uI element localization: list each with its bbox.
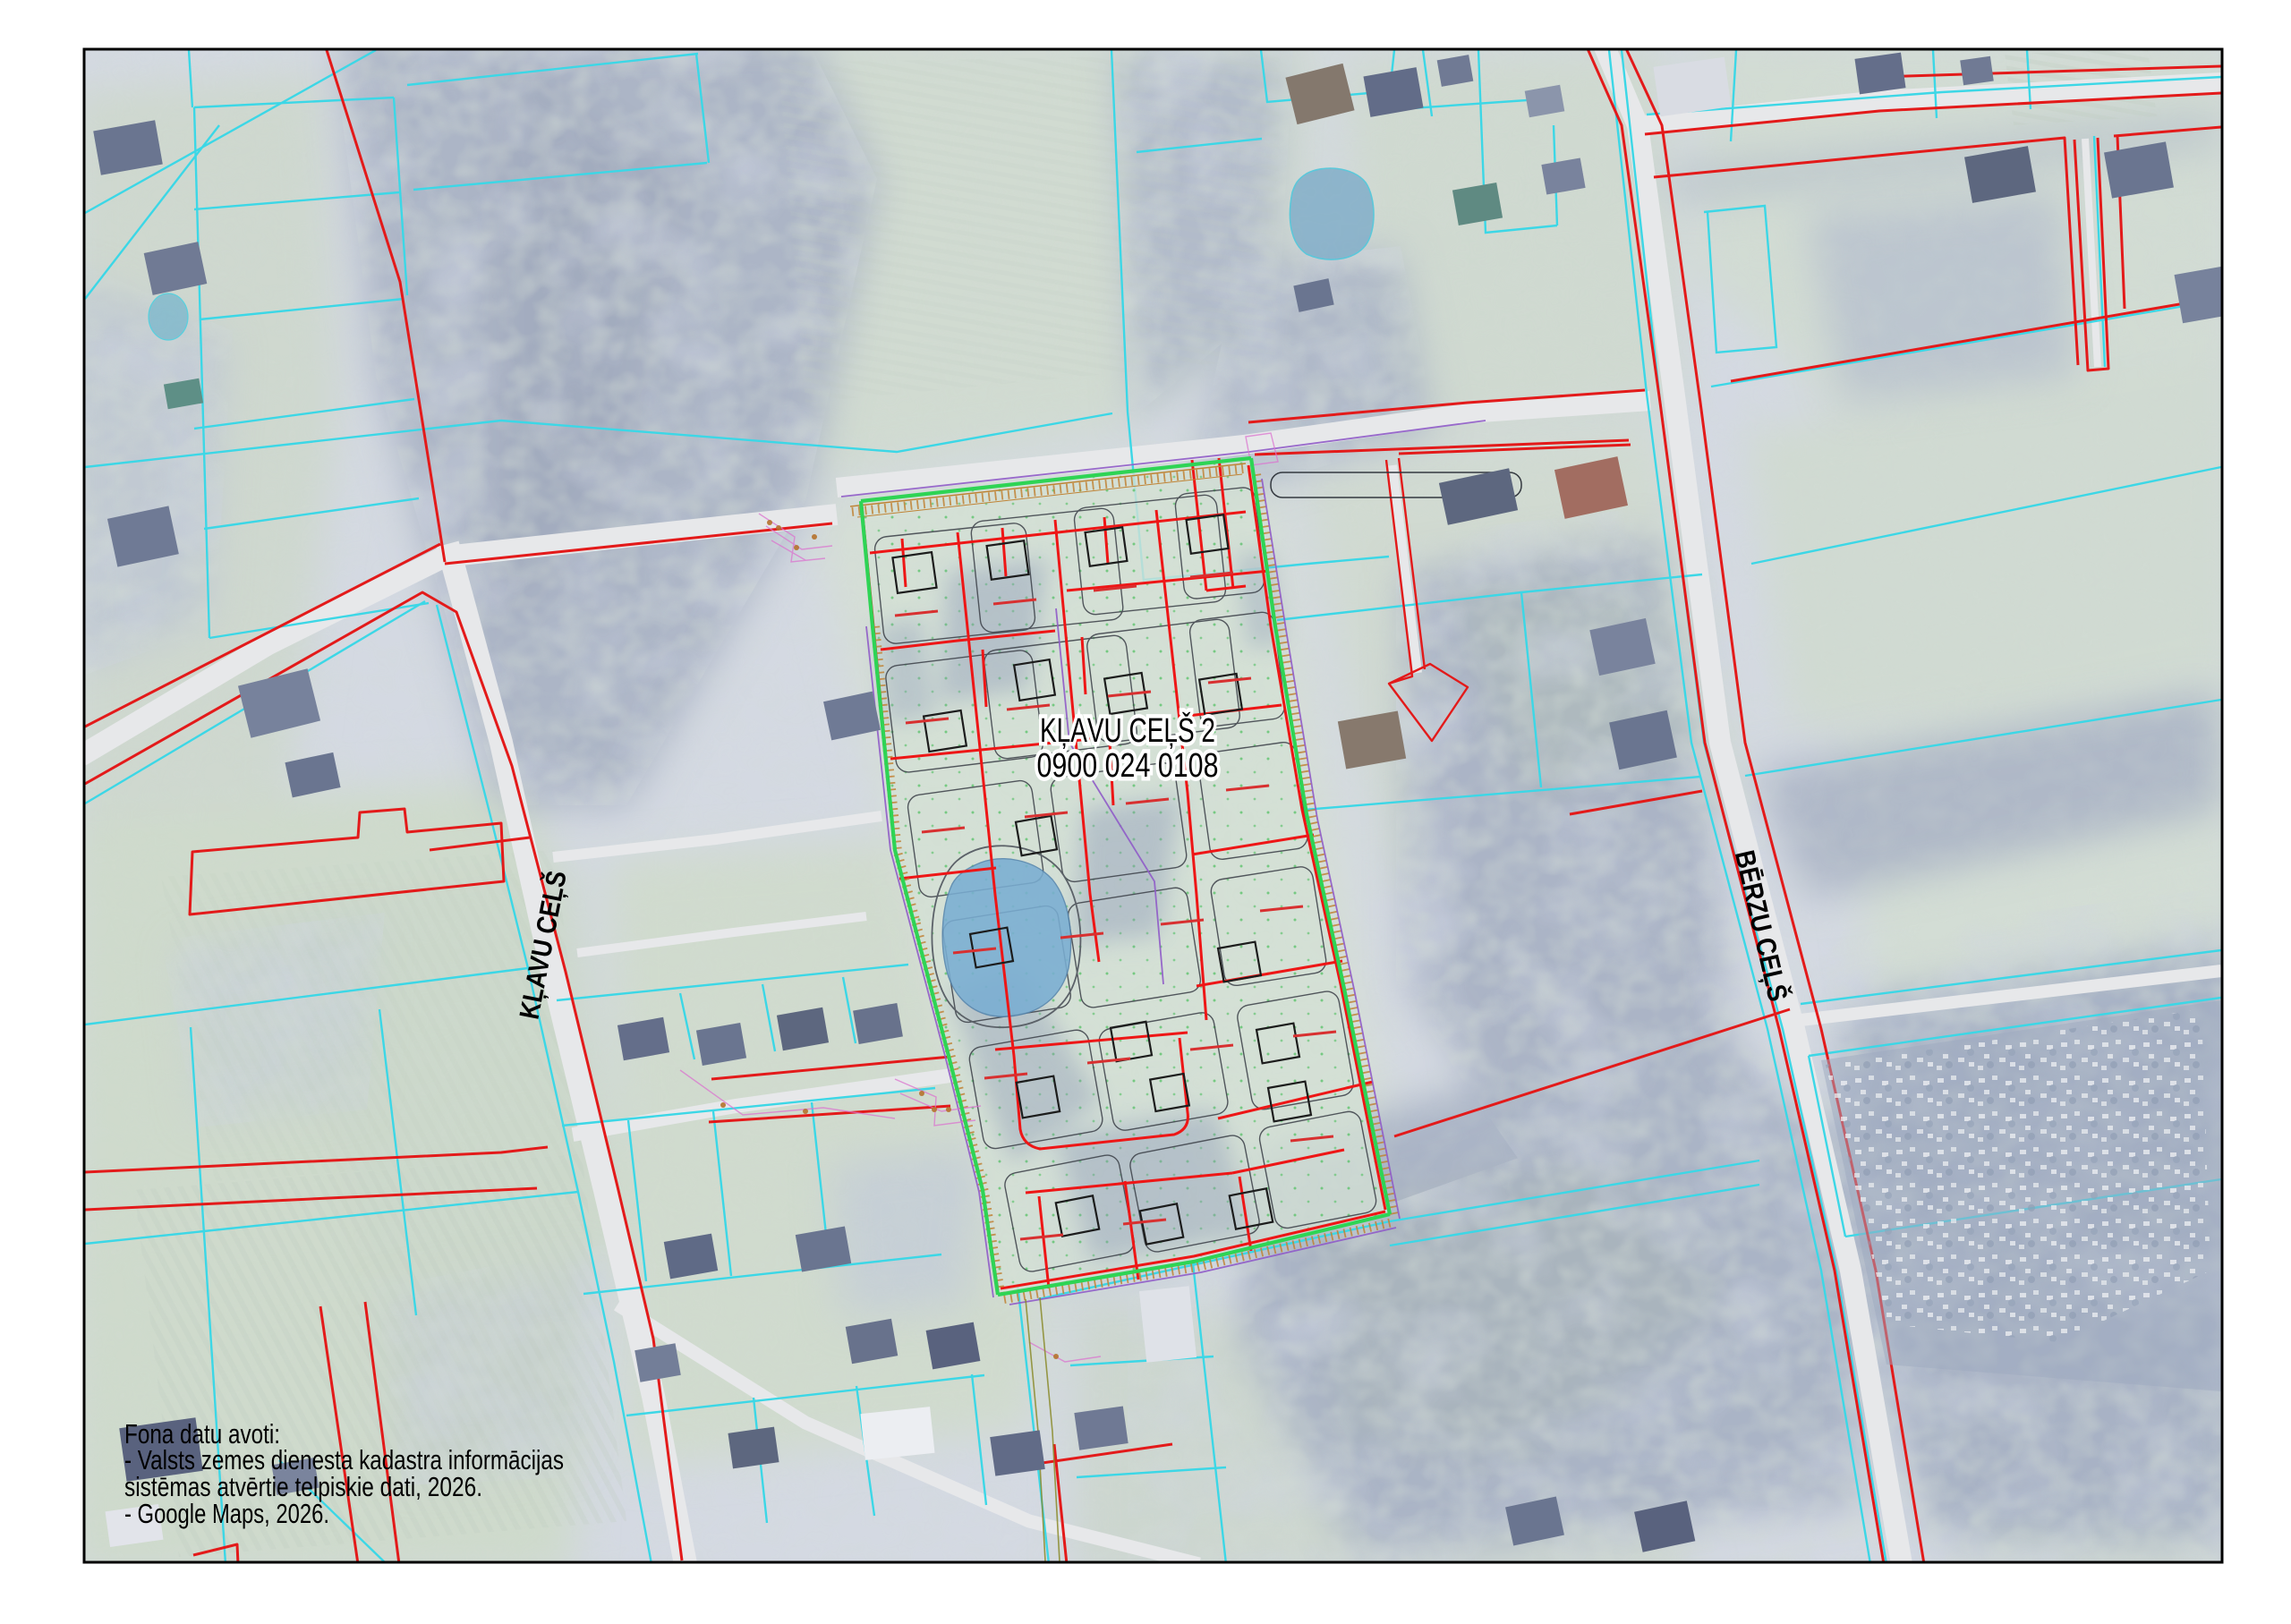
svg-text:KĻAVU CEĻŠ 2: KĻAVU CEĻŠ 2 xyxy=(1040,710,1215,750)
svg-text:- Google Maps, 2026.: - Google Maps, 2026. xyxy=(124,1498,329,1529)
svg-text:0900 024 0108: 0900 024 0108 xyxy=(1037,747,1219,785)
